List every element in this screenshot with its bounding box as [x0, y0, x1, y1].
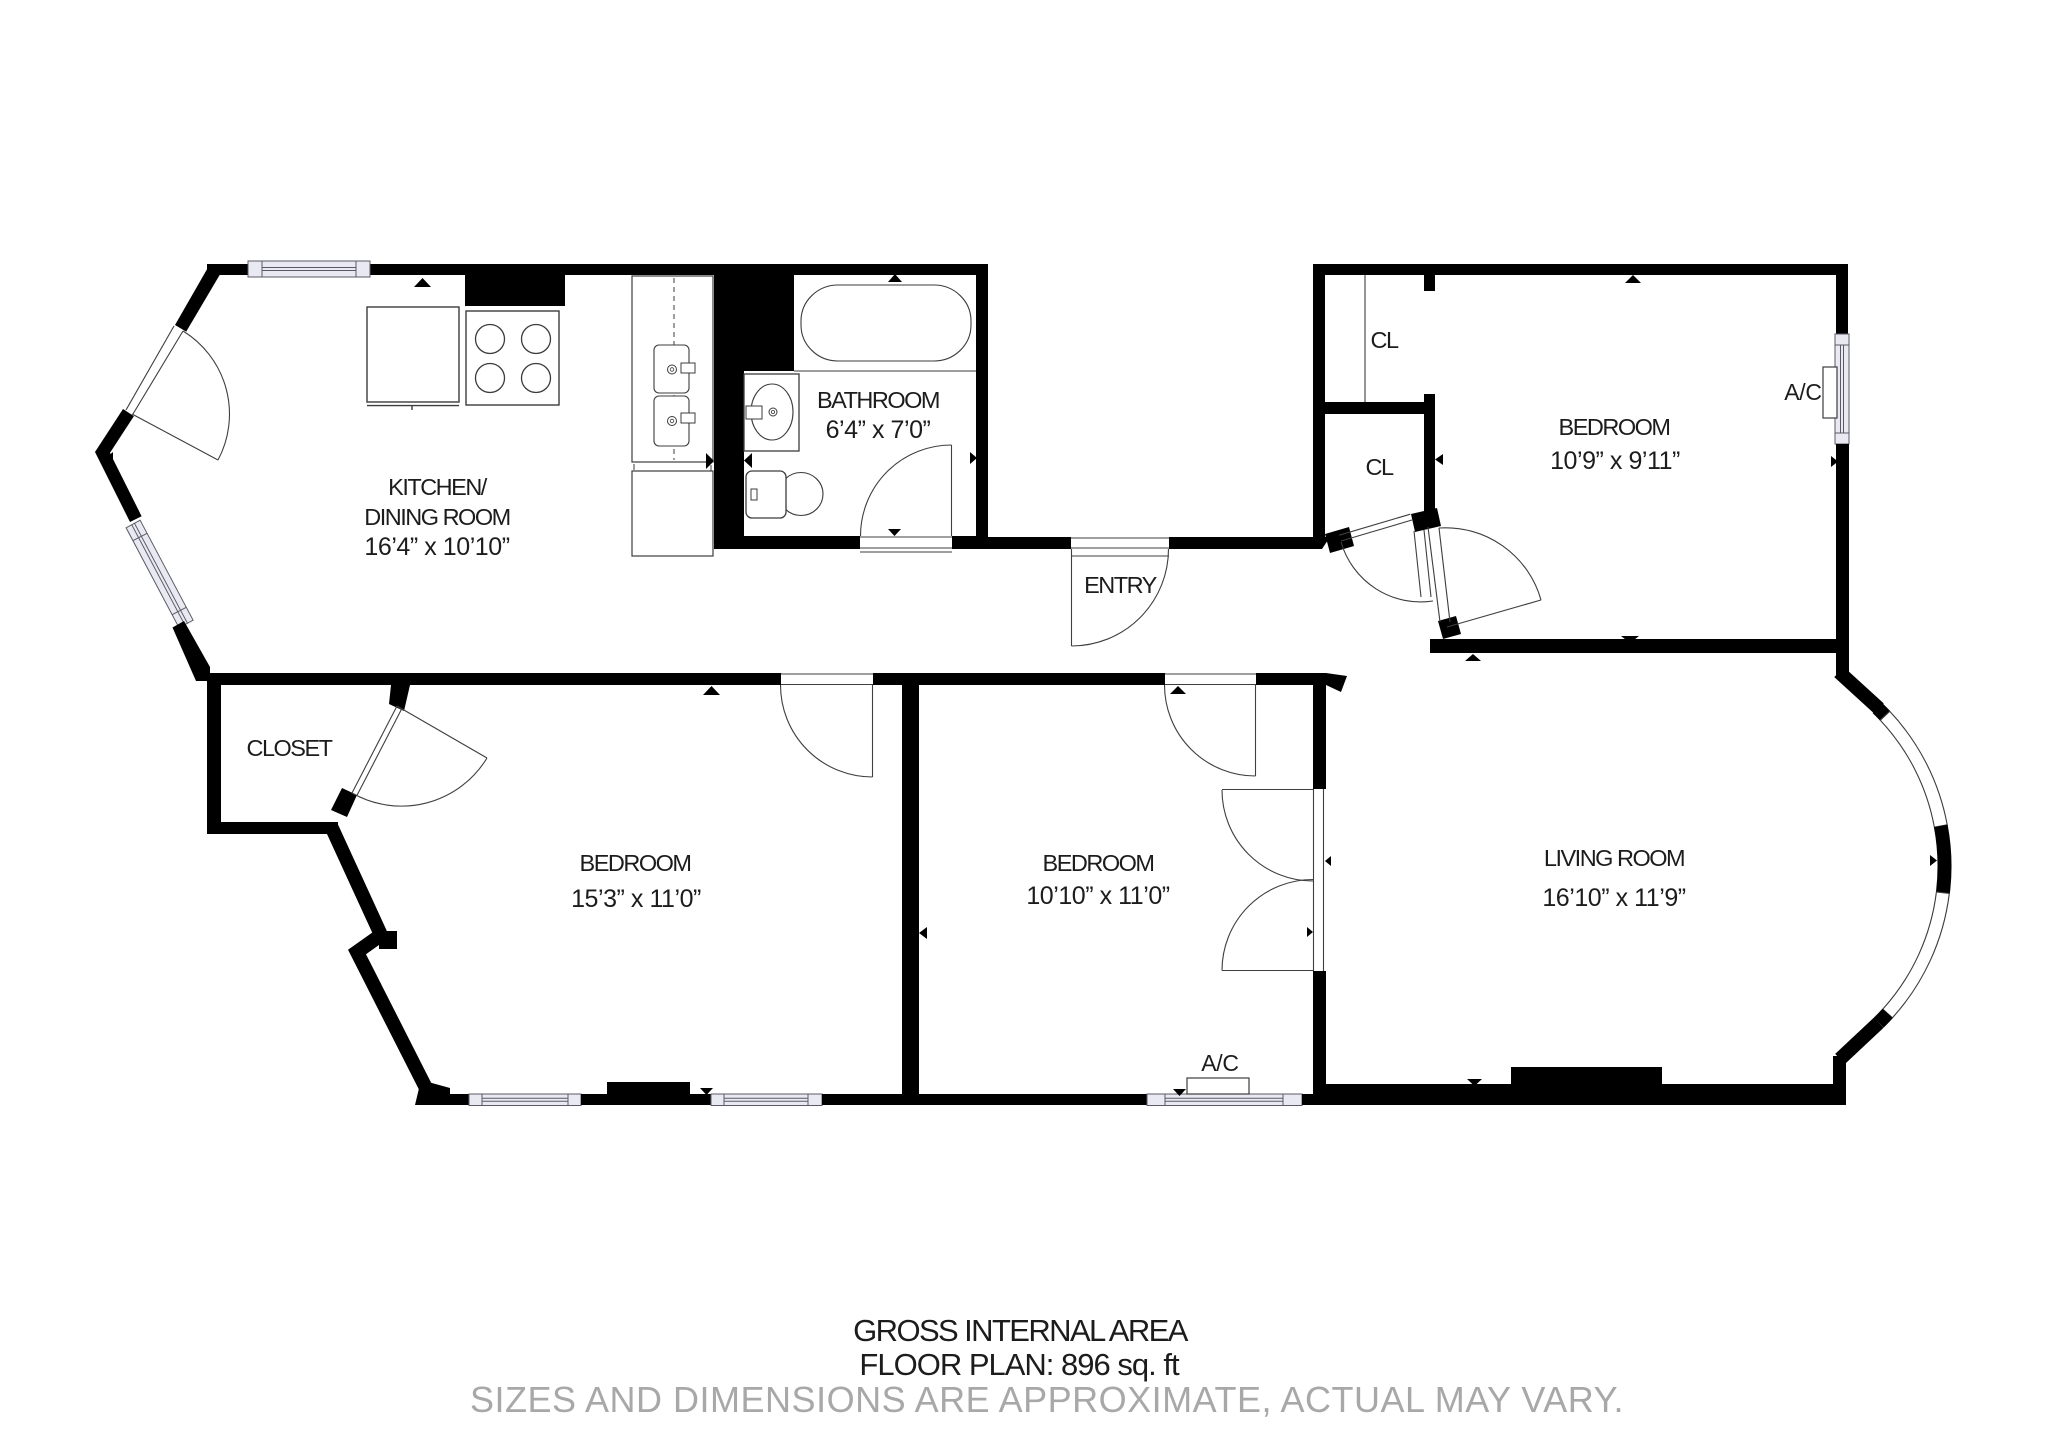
svg-text:CL: CL: [1365, 454, 1393, 480]
svg-text:BATHROOM: BATHROOM: [817, 387, 939, 413]
svg-text:SIZES AND DIMENSIONS ARE APPRO: SIZES AND DIMENSIONS ARE APPROXIMATE, AC…: [470, 1379, 1624, 1420]
svg-text:15’3” x 11’0”: 15’3” x 11’0”: [571, 885, 701, 913]
svg-text:16’4” x 10’10”: 16’4” x 10’10”: [364, 533, 509, 561]
svg-text:GROSS INTERNAL AREA: GROSS INTERNAL AREA: [853, 1313, 1189, 1348]
svg-text:CLOSET: CLOSET: [246, 735, 332, 761]
svg-text:LIVING ROOM: LIVING ROOM: [1544, 845, 1684, 871]
svg-text:KITCHEN/: KITCHEN/: [388, 474, 488, 500]
svg-text:BEDROOM: BEDROOM: [1559, 414, 1670, 440]
svg-text:DINING ROOM: DINING ROOM: [364, 504, 509, 530]
svg-text:ENTRY: ENTRY: [1084, 572, 1158, 598]
svg-text:16’10” x 11’9”: 16’10” x 11’9”: [1542, 884, 1685, 912]
svg-text:BEDROOM: BEDROOM: [580, 850, 691, 876]
svg-text:A/C: A/C: [1201, 1050, 1238, 1076]
svg-text:10’9” x 9’11”: 10’9” x 9’11”: [1550, 447, 1680, 475]
svg-text:BEDROOM: BEDROOM: [1043, 850, 1154, 876]
svg-text:A/C: A/C: [1784, 379, 1821, 405]
svg-text:FLOOR PLAN: 896 sq. ft: FLOOR PLAN: 896 sq. ft: [859, 1347, 1180, 1382]
svg-text:CL: CL: [1370, 327, 1398, 353]
svg-text:6’4” x 7’0”: 6’4” x 7’0”: [826, 416, 931, 444]
svg-text:10’10” x 11’0”: 10’10” x 11’0”: [1026, 882, 1169, 910]
